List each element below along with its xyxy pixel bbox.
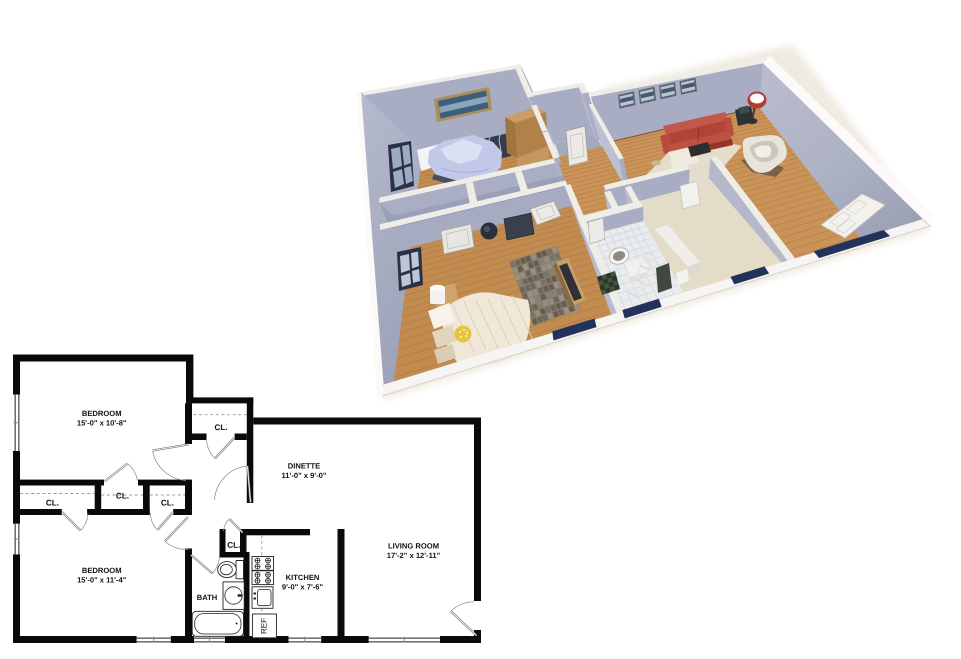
svg-text:REF: REF (259, 618, 268, 634)
svg-text:15'-0" x 11'-4": 15'-0" x 11'-4" (77, 575, 127, 584)
svg-text:KITCHEN: KITCHEN (286, 573, 320, 582)
svg-text:CL.: CL. (161, 498, 174, 507)
svg-text:BATH: BATH (197, 593, 218, 602)
svg-text:CL.: CL. (116, 491, 129, 500)
svg-text:CL.: CL. (215, 423, 228, 432)
svg-text:LIVING ROOM: LIVING ROOM (388, 541, 439, 550)
svg-text:9'-0" x 7'-6": 9'-0" x 7'-6" (282, 582, 324, 591)
svg-text:BEDROOM: BEDROOM (82, 566, 122, 575)
svg-text:15'-0" x 10'-8": 15'-0" x 10'-8" (77, 418, 127, 427)
svg-text:DINETTE: DINETTE (288, 461, 321, 470)
svg-text:BEDROOM: BEDROOM (82, 409, 122, 418)
svg-text:CL.: CL. (46, 498, 59, 507)
svg-text:11'-0" x 9'-0": 11'-0" x 9'-0" (281, 471, 326, 480)
svg-text:17'-2" x 12'-11": 17'-2" x 12'-11" (387, 551, 441, 560)
svg-text:CL.: CL. (227, 541, 240, 550)
